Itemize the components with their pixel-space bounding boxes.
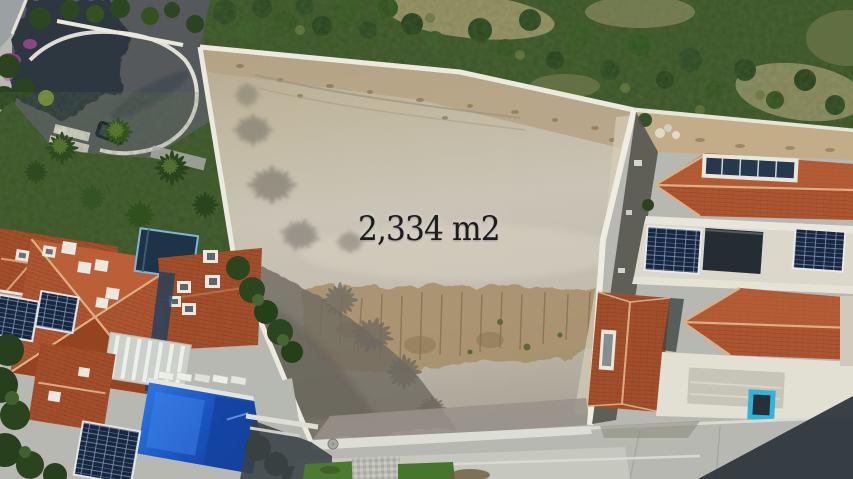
roof-mid-left <box>588 292 670 412</box>
solar-array-bottom <box>74 421 140 479</box>
dark-courtyard <box>703 228 764 274</box>
aerial-photo: 2,334 m2 <box>0 0 853 479</box>
grass-strip-b <box>398 462 455 479</box>
solar-array-right-a <box>645 226 702 274</box>
roof-lower-left <box>28 343 115 432</box>
solar-array-right-b <box>793 228 846 271</box>
paver-strip <box>352 456 401 479</box>
roof-skylight-strip <box>702 154 799 183</box>
area-label: 2,334 m2 <box>358 209 487 249</box>
plunge-pool <box>747 389 776 420</box>
